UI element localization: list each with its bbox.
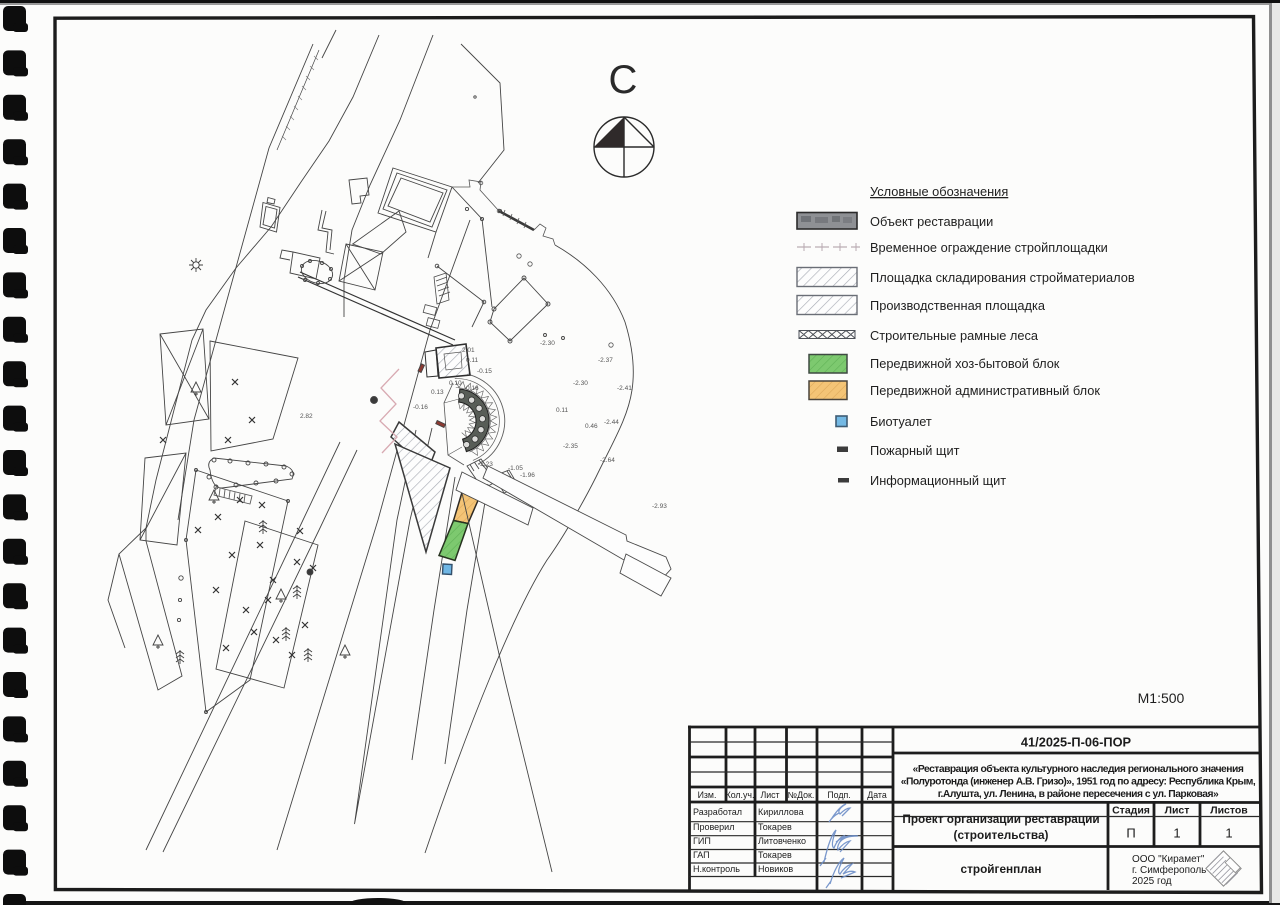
svg-text:Пожарный щит: Пожарный щит: [870, 443, 960, 458]
svg-text:0.13: 0.13: [431, 389, 444, 396]
svg-text:-1.05: -1.05: [508, 465, 523, 472]
svg-text:0.16: 0.16: [466, 385, 479, 392]
svg-text:Н.контроль: Н.контроль: [693, 864, 740, 874]
svg-text:-0.15: -0.15: [477, 368, 492, 375]
svg-text:Информационный щит: Информационный щит: [870, 473, 1006, 488]
svg-text:2.82: 2.82: [300, 413, 313, 420]
svg-text:-2.23: -2.23: [478, 461, 493, 468]
svg-text:-2.30: -2.30: [573, 380, 588, 387]
svg-text:ООО "Кирамет": ООО "Кирамет": [1132, 854, 1205, 865]
svg-text:-2.93: -2.93: [652, 503, 667, 510]
svg-text:Лист: Лист: [760, 790, 779, 800]
svg-text:стройгенплан: стройгенплан: [961, 862, 1042, 876]
svg-text:«Реставрация объекта культурно: «Реставрация объекта культурного наследи…: [913, 763, 1244, 775]
svg-text:0.10: 0.10: [449, 380, 462, 387]
svg-text:-1.96: -1.96: [520, 472, 535, 479]
svg-text:ГИП: ГИП: [693, 836, 711, 846]
svg-text:Производственная площадка: Производственная площадка: [870, 298, 1046, 313]
svg-text:Кол.уч.: Кол.уч.: [726, 790, 755, 800]
svg-text:Изм.: Изм.: [698, 790, 717, 800]
svg-text:Дата: Дата: [867, 790, 887, 800]
svg-text:Передвижной административный б: Передвижной административный блок: [870, 383, 1100, 398]
svg-text:Строительные рамные леса: Строительные рамные леса: [870, 328, 1039, 343]
svg-text:Условные обозначения: Условные обозначения: [870, 184, 1008, 199]
svg-text:(строительства): (строительства): [954, 828, 1049, 842]
svg-text:Объект реставрации: Объект реставрации: [870, 214, 993, 229]
svg-text:Разработал: Разработал: [693, 807, 742, 817]
svg-text:Новиков: Новиков: [758, 864, 793, 874]
svg-text:г. Симферополь: г. Симферополь: [1132, 864, 1206, 876]
svg-text:0.11: 0.11: [556, 407, 569, 414]
svg-text:-0.16: -0.16: [413, 404, 428, 411]
svg-text:2.01: 2.01: [462, 347, 475, 354]
svg-text:-2.37: -2.37: [598, 357, 613, 364]
svg-text:Стадия: Стадия: [1112, 805, 1150, 817]
svg-text:Площадка складирования стройма: Площадка складирования стройматериалов: [870, 270, 1135, 285]
svg-text:Проект организации реставрации: Проект организации реставрации: [902, 812, 1099, 826]
svg-text:-2.41: -2.41: [617, 385, 632, 392]
svg-text:Биотуалет: Биотуалет: [870, 414, 932, 429]
svg-text:г.Алушта, ул. Ленина, в районе: г.Алушта, ул. Ленина, в районе пересечен…: [938, 789, 1219, 800]
svg-text:C: C: [609, 58, 638, 102]
svg-text:-2.64: -2.64: [600, 457, 615, 464]
svg-text:№Док.: №Док.: [788, 790, 815, 800]
svg-text:«Полуротонда (инженер А.В. Гри: «Полуротонда (инженер А.В. Гризо)», 1951…: [901, 776, 1256, 788]
svg-text:Кириллова: Кириллова: [758, 807, 804, 817]
svg-text:-2.35: -2.35: [563, 443, 578, 450]
svg-text:Токарев: Токарев: [758, 850, 792, 860]
svg-text:Временное ограждение стройплощ: Временное ограждение стройплощадки: [870, 240, 1108, 255]
svg-text:-2.30: -2.30: [540, 340, 555, 347]
svg-text:Листов: Листов: [1210, 805, 1248, 817]
svg-text:Подп.: Подп.: [827, 790, 850, 800]
svg-text:1: 1: [1173, 826, 1180, 841]
svg-text:0.46: 0.46: [585, 423, 598, 430]
svg-text:-2.44: -2.44: [604, 419, 619, 426]
svg-text:41/2025-П-06-ПОР: 41/2025-П-06-ПОР: [1021, 735, 1132, 750]
svg-text:Лист: Лист: [1165, 805, 1190, 817]
svg-text:2025 год: 2025 год: [1132, 876, 1172, 887]
svg-text:Литовченко: Литовченко: [758, 836, 806, 846]
svg-text:0.11: 0.11: [466, 357, 479, 364]
svg-text:П: П: [1126, 826, 1135, 841]
svg-text:Токарев: Токарев: [758, 822, 792, 832]
svg-text:М1:500: М1:500: [1138, 690, 1185, 706]
svg-text:Проверил: Проверил: [693, 822, 734, 832]
svg-text:ГАП: ГАП: [693, 850, 710, 860]
svg-text:Передвижной хоз-бытовой блок: Передвижной хоз-бытовой блок: [870, 356, 1060, 371]
svg-text:1: 1: [1225, 826, 1232, 841]
